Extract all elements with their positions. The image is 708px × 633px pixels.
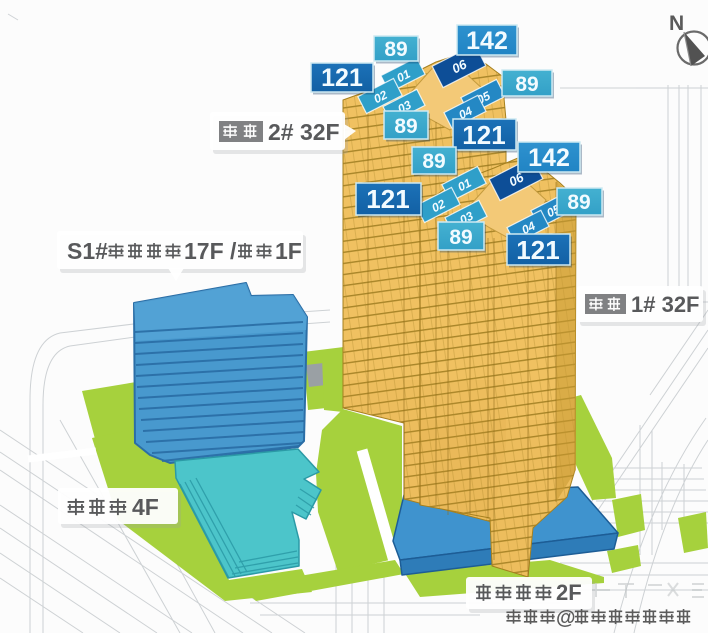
svg-text:89: 89 <box>515 73 538 96</box>
svg-text:121: 121 <box>462 120 505 150</box>
svg-text:4F: 4F <box>132 494 159 520</box>
svg-text:121: 121 <box>321 64 363 92</box>
svg-text:1# 32F: 1# 32F <box>631 292 700 317</box>
svg-text:N: N <box>669 12 684 35</box>
svg-text:89: 89 <box>422 150 445 173</box>
svg-text:1F: 1F <box>275 238 302 264</box>
svg-text:2F: 2F <box>556 580 582 605</box>
svg-text:2# 32F: 2# 32F <box>268 119 340 145</box>
svg-text:S1#: S1# <box>67 238 108 264</box>
svg-text:121: 121 <box>366 184 409 214</box>
svg-text:89: 89 <box>384 38 407 61</box>
svg-text:142: 142 <box>528 144 570 172</box>
svg-text:89: 89 <box>567 191 590 214</box>
svg-text:142: 142 <box>466 27 508 55</box>
svg-text:@: @ <box>556 607 576 629</box>
svg-text:89: 89 <box>449 226 472 249</box>
svg-text:121: 121 <box>516 235 559 265</box>
svg-text:17F /: 17F / <box>184 238 237 264</box>
svg-text:89: 89 <box>394 115 417 138</box>
